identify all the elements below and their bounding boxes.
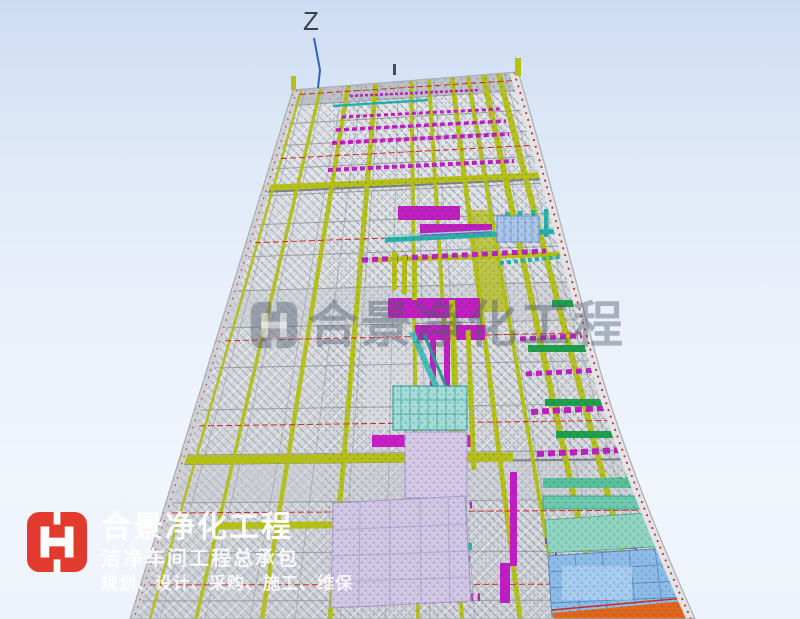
company-name: 合景净化工程	[101, 511, 353, 544]
company-services: 规划、设计、采购、施工、维保	[101, 575, 353, 594]
company-subtitle: 洁净车间工程总承包	[101, 548, 353, 570]
z-axis-indicator: Z	[303, 6, 320, 88]
company-text: 合景净化工程 洁净车间工程总承包 规划、设计、采购、施工、维保	[101, 511, 353, 594]
cad-screenshot: Z 合景净化工程 合景净化工程 洁净车间工程总承包	[0, 0, 800, 619]
company-logo-icon	[26, 511, 88, 573]
z-axis-label: Z	[303, 6, 319, 36]
z-axis-line	[314, 38, 320, 88]
company-logo-block: 合景净化工程 洁净车间工程总承包 规划、设计、采购、施工、维保	[26, 511, 353, 594]
